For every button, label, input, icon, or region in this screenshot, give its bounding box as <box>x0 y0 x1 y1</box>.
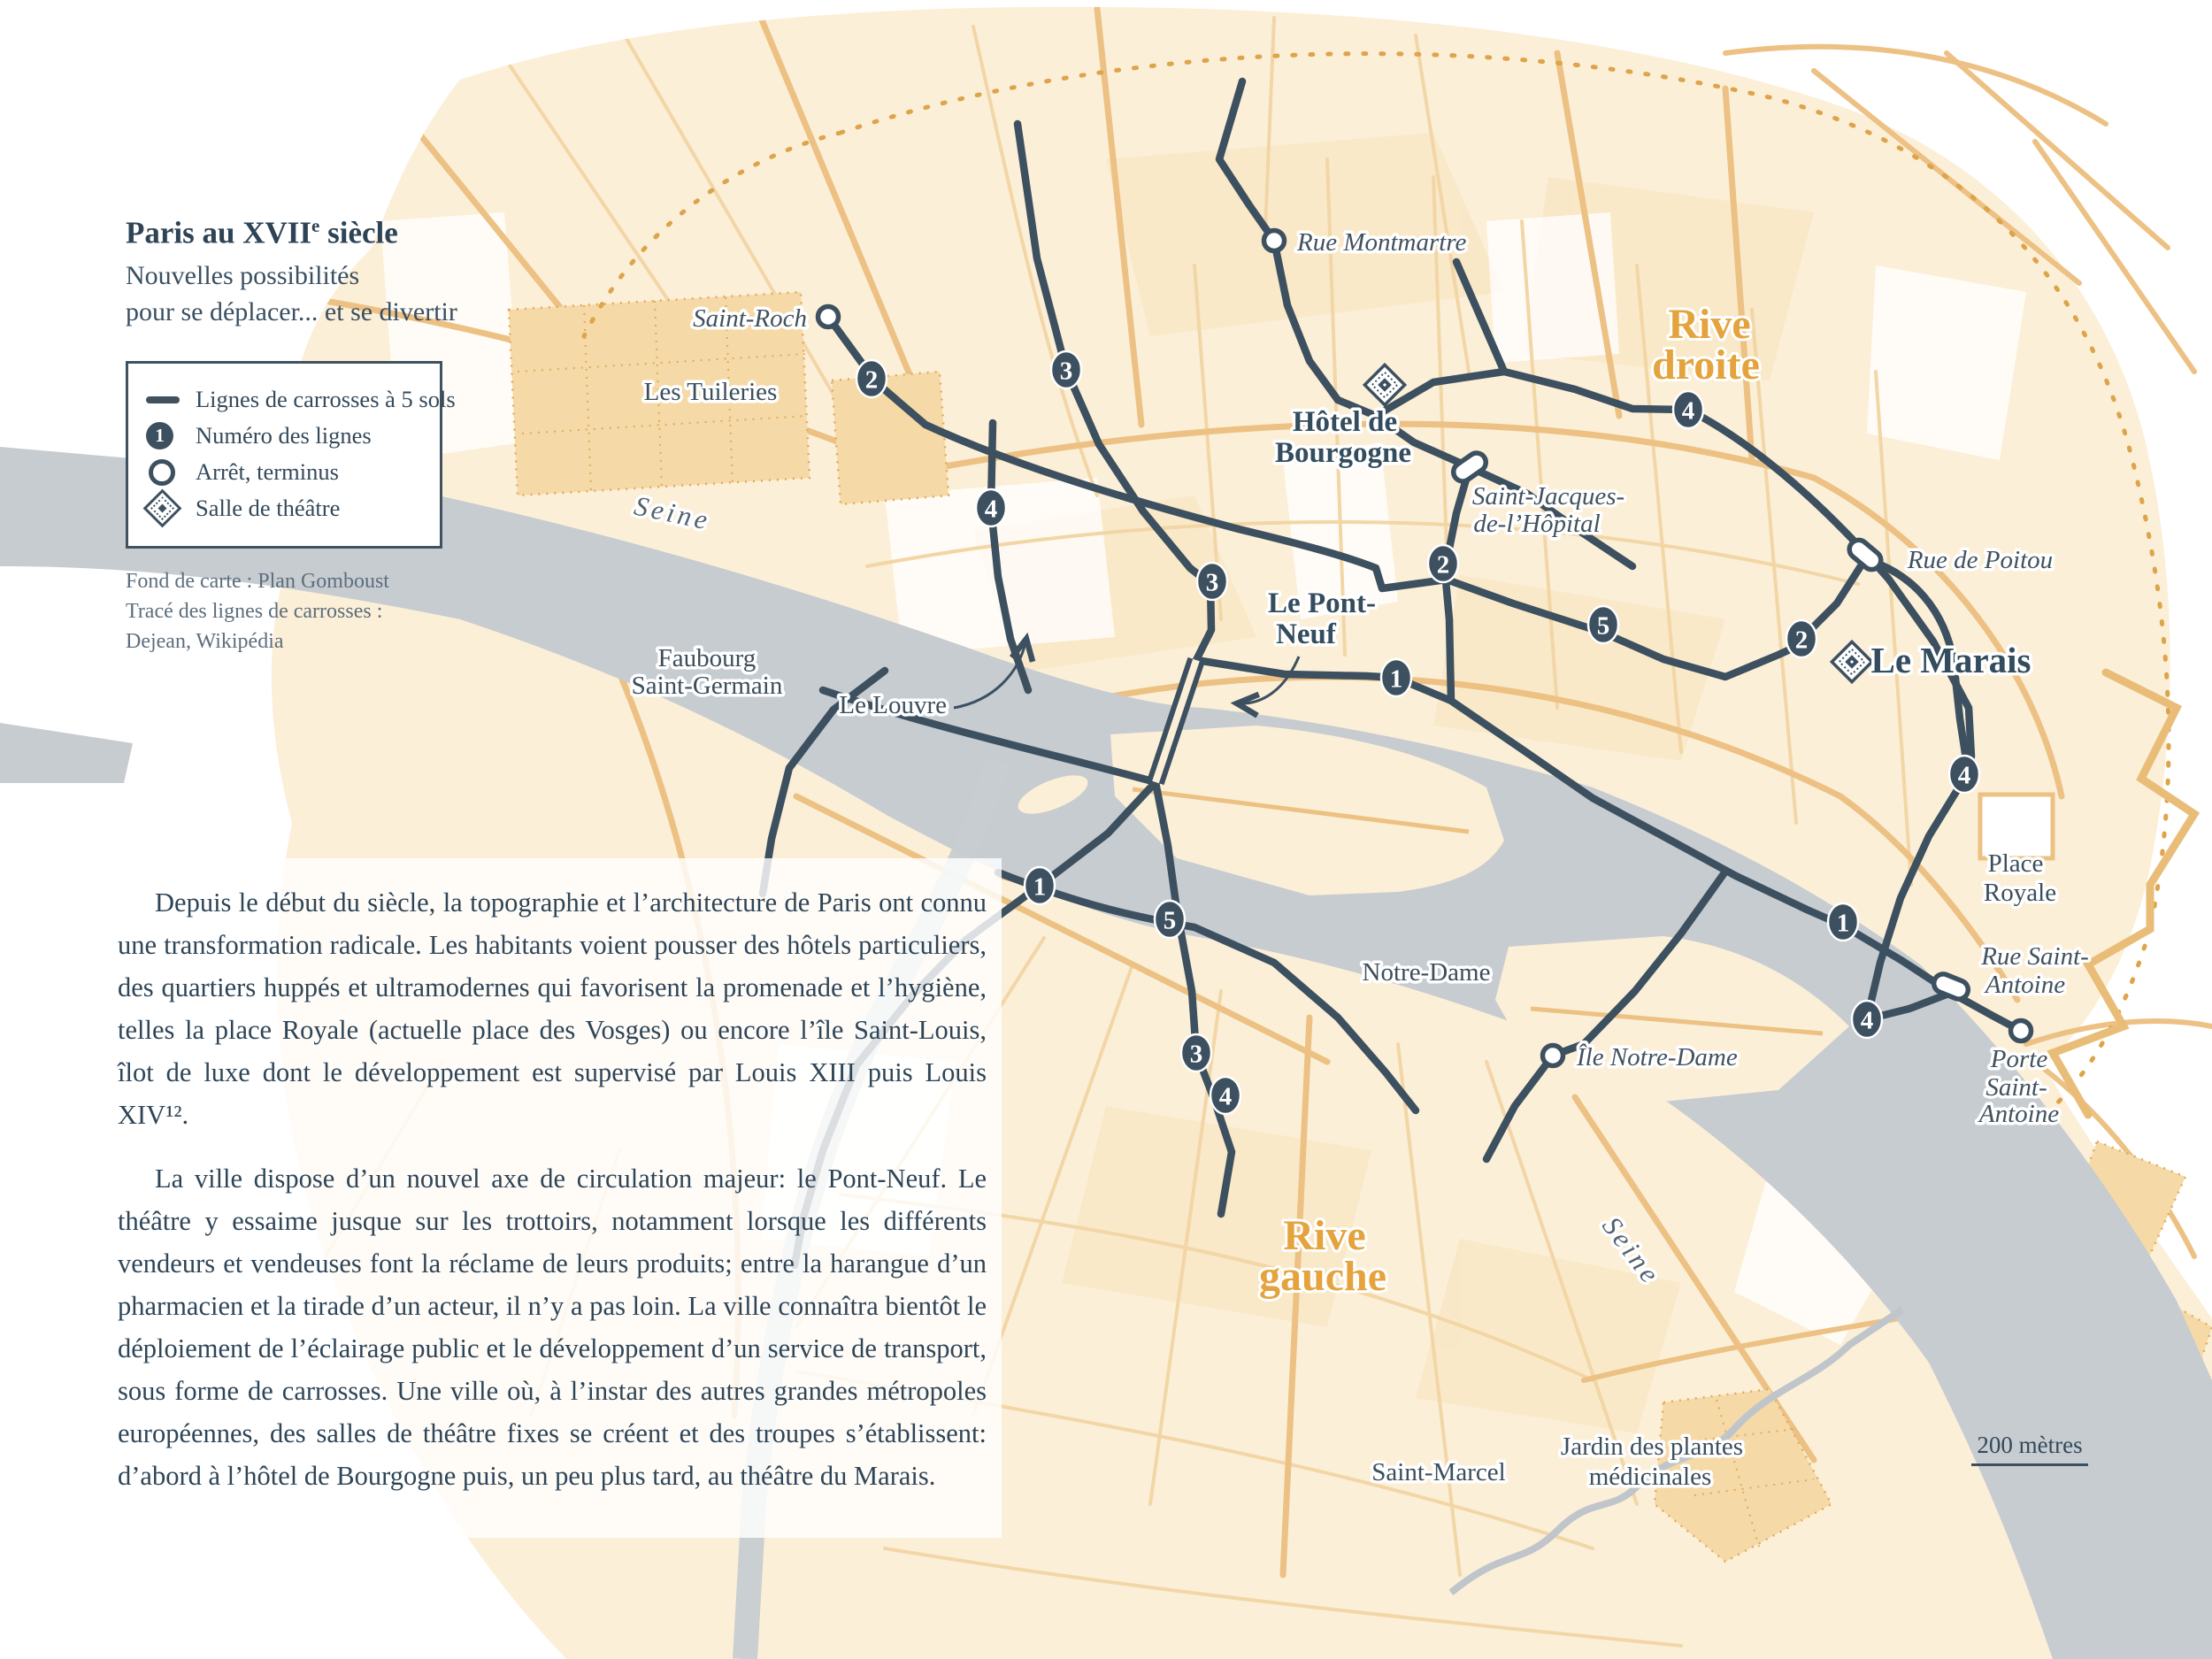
stop-terminus-icon <box>1264 231 1285 251</box>
scale-bar-line <box>1971 1463 2088 1466</box>
page-title: Paris au XVIIe siècle <box>126 209 457 250</box>
map-label-royale: Royale <box>1984 879 2056 907</box>
badge-number: 4 <box>1861 1006 1874 1034</box>
map-label-medicinales: médicinales <box>1589 1463 1712 1491</box>
paragraph-1: Depuis le début du siècle, la topographi… <box>118 881 987 1136</box>
map-label-antoine: Antoine <box>1978 1100 2059 1128</box>
source-line-2: Tracé des lignes de carrosses : <box>126 596 389 626</box>
badge-number: 3 <box>1190 1040 1203 1068</box>
map-label-saint-jacques: Saint-Jacques- <box>1472 482 1624 511</box>
line-number-badge-4: 4 <box>1210 1077 1240 1114</box>
map-label-notre-dame: Notre-Dame <box>1363 958 1491 987</box>
map-label-saint-roch: Saint-Roch <box>693 304 807 333</box>
badge-number: 4 <box>985 495 998 523</box>
map-label-saint-germain: Saint-Germain <box>632 672 783 700</box>
map-label-bourgogne: Bourgogne <box>1275 437 1411 469</box>
map-label-les-tuileries: Les Tuileries <box>644 378 778 406</box>
line-number-icon: 1 <box>146 422 196 449</box>
line-number-badge-4: 4 <box>1673 391 1703 428</box>
map-label-jardin-des-plantes: Jardin des plantes <box>1561 1432 1743 1461</box>
line-number-badge-2: 2 <box>1786 620 1816 657</box>
page: 2343252144151434 Rue MontmartreSaint-Roc… <box>0 0 2212 1659</box>
badge-number: 5 <box>1597 611 1610 640</box>
badge-number: 2 <box>1795 626 1809 654</box>
stop-terminus-icon <box>2011 1021 2032 1041</box>
badge-number: 4 <box>1682 396 1695 425</box>
line-number-badge-1: 1 <box>1025 867 1055 904</box>
map-label-ile-notre-dame: Île Notre-Dame <box>1576 1042 1738 1071</box>
badge-number: 4 <box>1958 761 1971 789</box>
paragraph-2: La ville dispose d’un nouvel axe de circ… <box>118 1157 987 1497</box>
map-label-rue-montmartre: Rue Montmartre <box>1296 228 1467 257</box>
line-number-badge-2: 2 <box>1428 545 1458 582</box>
map-label-le-marais: Le Marais <box>1870 640 2031 680</box>
line-number-badge-1: 1 <box>1828 903 1858 941</box>
badge-number: 4 <box>1219 1082 1233 1110</box>
scale-bar-label: 200 mètres <box>1971 1432 2088 1459</box>
page-subtitle: Nouvelles possibilités pour se déplacer.… <box>126 257 457 330</box>
badge-number: 5 <box>1164 906 1177 934</box>
badge-number: 2 <box>1437 550 1450 579</box>
subtitle-line-1: Nouvelles possibilités <box>126 257 457 294</box>
map-label-le-louvre: Le Louvre <box>839 691 947 719</box>
stop-terminus-icon <box>1543 1046 1563 1066</box>
line-number-badge-4: 4 <box>1852 1001 1882 1038</box>
line-number-badge-4: 4 <box>976 489 1006 526</box>
badge-number: 3 <box>1206 568 1219 596</box>
badge-number: 2 <box>865 365 879 394</box>
legend-item-stop: Arrêt, terminus <box>146 458 424 486</box>
line-number-badge-4: 4 <box>1949 756 1979 793</box>
map-label-neuf: Neuf <box>1276 618 1337 650</box>
map-label-droite: droite <box>1652 342 1760 388</box>
legend-item-lines: Lignes de carrosses à 5 sols <box>146 386 424 413</box>
theatre-diamond-icon <box>146 495 196 522</box>
line-number-badge-1: 1 <box>1381 659 1411 696</box>
line-number-badge-3: 3 <box>1197 563 1227 600</box>
map-label-rue-de-poitou: Rue de Poitou <box>1907 546 2053 574</box>
map-label-porte: Porte <box>1990 1045 2048 1073</box>
badge-number: 1 <box>1837 909 1850 937</box>
line-number-badge-5: 5 <box>1588 606 1618 643</box>
carriage-line-icon <box>146 396 196 403</box>
article-text: Depuis le début du siècle, la topographi… <box>118 881 987 1518</box>
source-line-1: Fond de carte : Plan Gomboust <box>126 566 389 596</box>
map-label-saint-marcel: Saint-Marcel <box>1371 1458 1505 1486</box>
line-number-badge-3: 3 <box>1181 1034 1211 1071</box>
map-label-rue-saint: Rue Saint- <box>1980 942 2089 971</box>
line-number-badge-5: 5 <box>1155 901 1185 938</box>
line-number-badge-3: 3 <box>1051 351 1081 388</box>
badge-number: 3 <box>1060 357 1073 385</box>
map-label-le-pont: Le Pont- <box>1268 588 1376 619</box>
map-label-antoine: Antoine <box>1984 971 2065 999</box>
map-label-de-l-hopital: de-l’Hôpital <box>1473 510 1600 538</box>
map-label-faubourg: Faubourg <box>658 644 757 672</box>
legend-item-number: 1 Numéro des lignes <box>146 422 424 449</box>
map-source: Fond de carte : Plan Gomboust Tracé des … <box>126 566 389 657</box>
map-label-place: Place <box>1988 849 2044 878</box>
badge-number: 1 <box>1033 872 1047 901</box>
stop-circle-icon <box>146 459 196 486</box>
source-line-3: Dejean, Wikipédia <box>126 626 389 657</box>
subtitle-line-2: pour se déplacer... et se divertir <box>126 294 457 330</box>
map-label-hotel-de: Hôtel de <box>1293 406 1397 438</box>
legend-item-theatre: Salle de théâtre <box>146 495 424 522</box>
stop-terminus-icon <box>818 307 839 327</box>
badge-number: 1 <box>1390 664 1403 693</box>
map-label-gauche: gauche <box>1259 1253 1386 1300</box>
scale-bar: 200 mètres <box>1971 1432 2088 1466</box>
legend: Lignes de carrosses à 5 sols 1 Numéro de… <box>126 361 442 549</box>
map-label-saint: Saint- <box>1985 1073 2047 1102</box>
title-block: Paris au XVIIe siècle Nouvelles possibil… <box>126 209 457 330</box>
line-number-badge-2: 2 <box>856 360 887 397</box>
